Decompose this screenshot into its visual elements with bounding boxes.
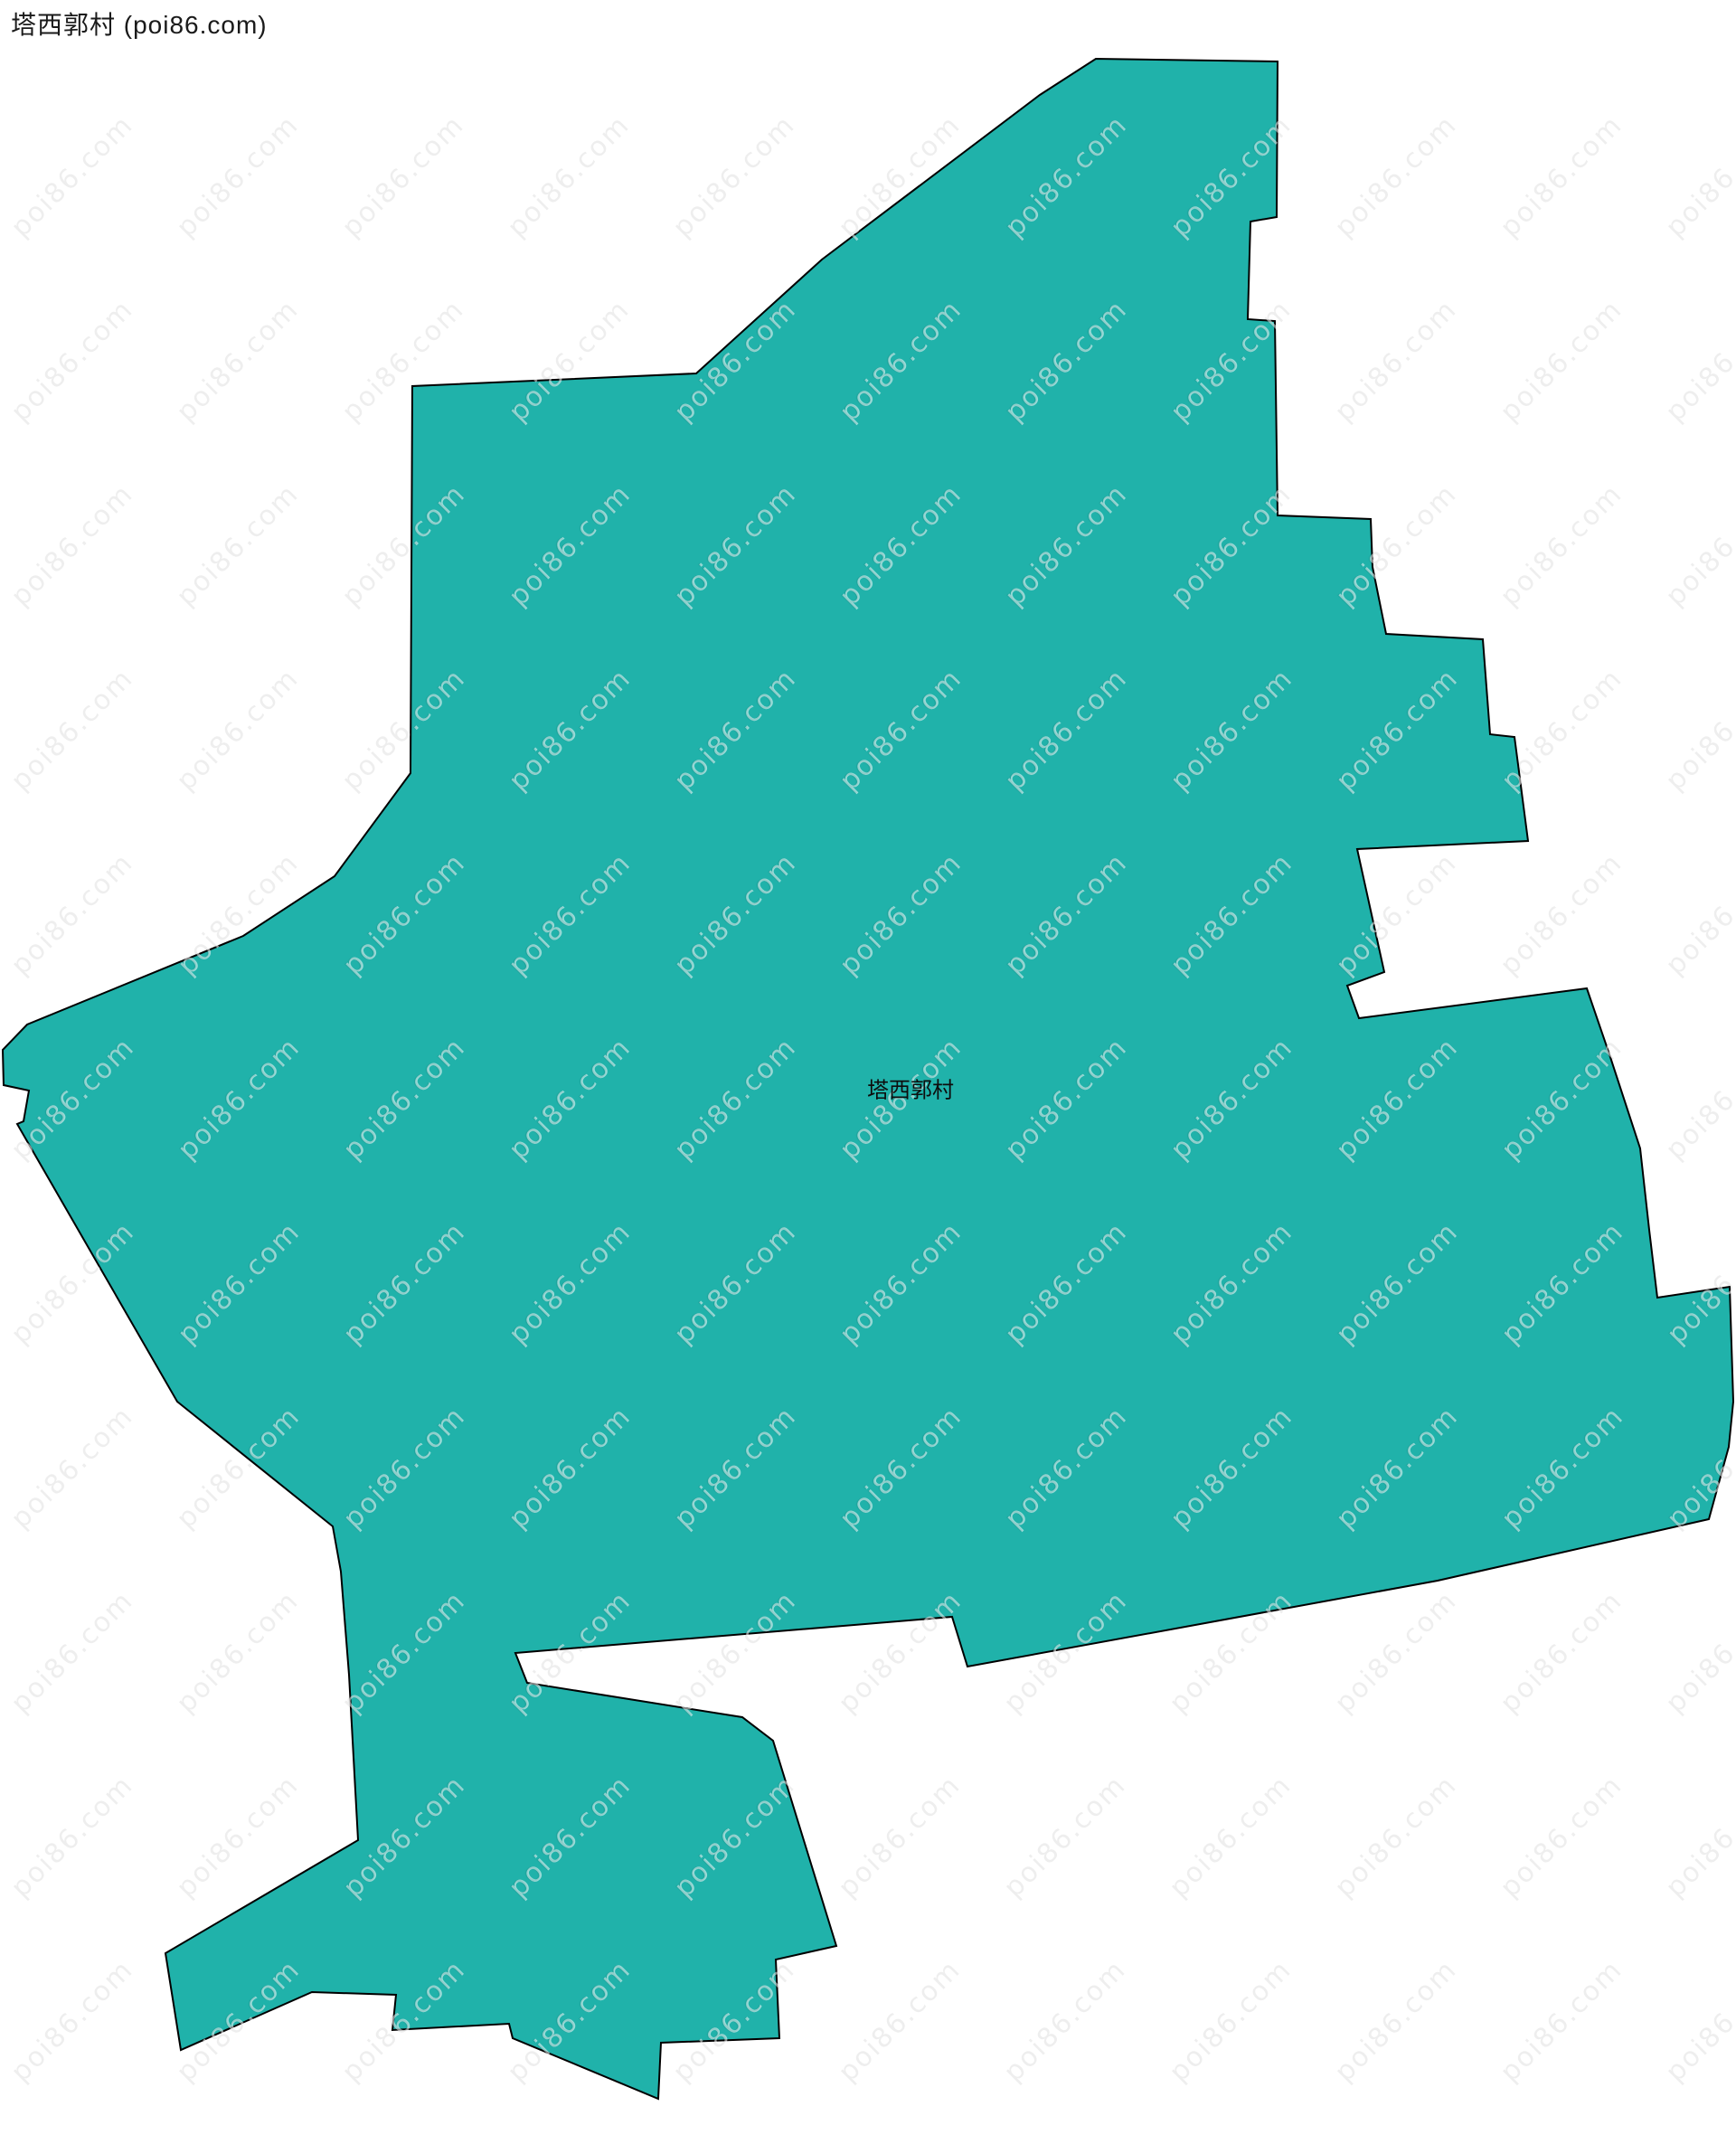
region-label: 塔西郭村 bbox=[867, 1072, 954, 1104]
page-title: 塔西郭村 (poi86.com) bbox=[11, 5, 268, 42]
map-page: poi86.compoi86.compoi86.compoi86.compoi8… bbox=[0, 0, 1736, 2144]
